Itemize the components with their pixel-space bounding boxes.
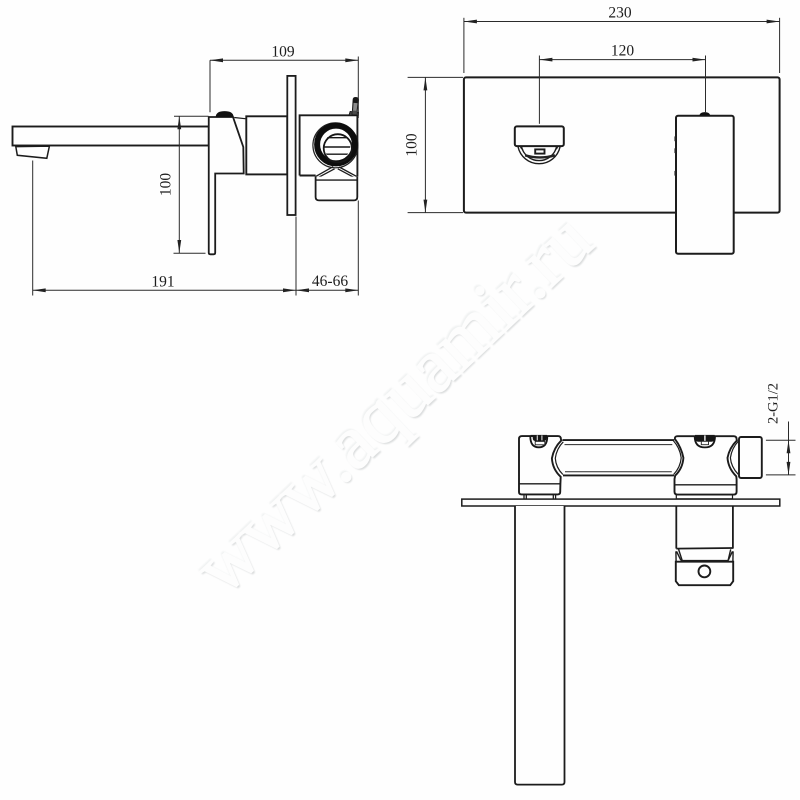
svg-text:100: 100 — [404, 133, 421, 157]
svg-text:109: 109 — [271, 44, 295, 61]
svg-text:191: 191 — [151, 274, 174, 291]
svg-text:100: 100 — [158, 173, 175, 197]
svg-text:2-G1/2: 2-G1/2 — [766, 383, 782, 424]
svg-text:230: 230 — [608, 5, 632, 22]
svg-text:46-66: 46-66 — [312, 273, 348, 290]
svg-text:120: 120 — [611, 43, 635, 60]
